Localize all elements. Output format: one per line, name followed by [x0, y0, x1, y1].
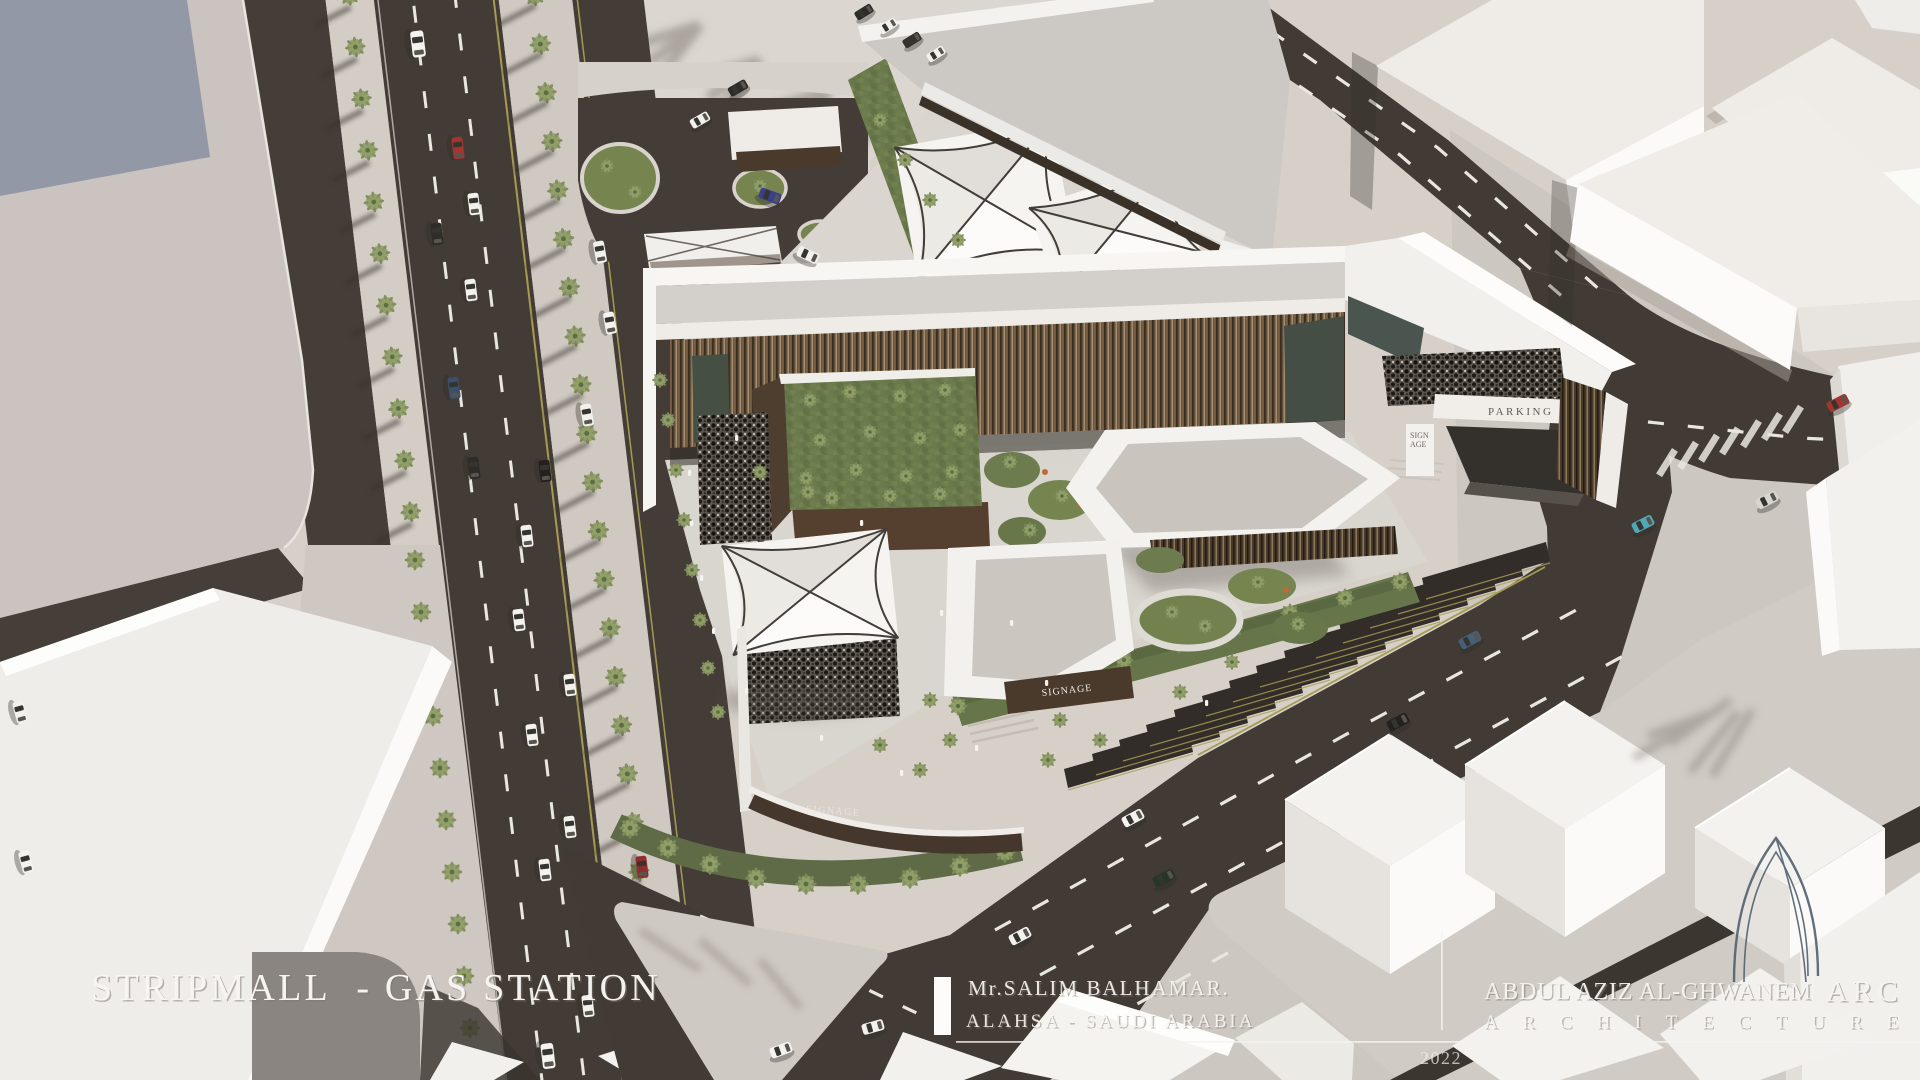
svg-text:ALAHSA - SAUDI ARABIA: ALAHSA - SAUDI ARABIA [966, 1011, 1255, 1032]
svg-text:ARCHITECTURE: ARCHITECTURE [1484, 1012, 1920, 1033]
svg-text:ARC: ARC [1826, 975, 1903, 1008]
svg-text:SIGN: SIGN [1410, 431, 1429, 440]
svg-text:2022: 2022 [1420, 1048, 1462, 1068]
svg-text:ABDUL AZIZ AL-GHWANEM: ABDUL AZIZ AL-GHWANEM [1484, 979, 1812, 1005]
svg-text:PARKING: PARKING [1488, 406, 1553, 418]
svg-text:AGE: AGE [1410, 440, 1427, 449]
svg-text:Mr.SALIM BALHAMAR.: Mr.SALIM BALHAMAR. [968, 976, 1230, 1000]
svg-text:STRIPMALL - GAS STATION: STRIPMALL - GAS STATION [91, 967, 661, 1009]
